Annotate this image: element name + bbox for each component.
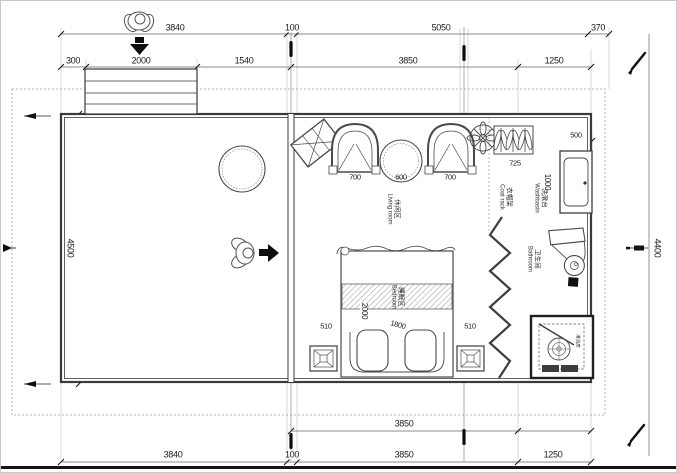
dim-left-4500: 4500 [66,239,75,258]
dim-top2-300: 300 [66,57,80,66]
dim-bottom-3840: 3840 [164,451,183,460]
mid-left-marker [3,244,16,252]
arch-chair-left [329,124,380,174]
floorplan-page: 3840 100 5050 370 300 2000 1540 3850 125… [0,0,677,473]
porch-steps [85,69,197,114]
left-dim-arrows [24,113,51,387]
dim-bottom-3850-inner: 3850 [395,420,414,429]
dim-bottom-100: 100 [284,451,300,460]
right-dim-marker [626,246,648,251]
entry-person-top-icon [122,12,156,34]
dim-bed-2000: 2000 [360,303,368,320]
label-shower: 淋浴房 [575,334,580,348]
dim-bed-510-right: 510 [464,322,476,330]
dim-bed-510-left: 510 [320,322,332,330]
entry-arrow-down-icon [130,37,149,55]
round-table-left-room [219,146,265,192]
arch-chair-right [425,124,476,174]
label-coat-rack: 衣帽架Coat rack [498,184,513,210]
shower-enclosure [531,316,593,378]
pillow-right [405,330,436,371]
pen-mark-bottom-right-icon [627,425,644,447]
dim-top-100: 100 [284,24,300,33]
dim-top2-3850: 3850 [399,57,418,66]
dim-top2-1540: 1540 [235,57,254,66]
label-living-room: 休闲区Living room [386,193,401,224]
label-bathroom: 卫生间Bathroom [526,246,541,272]
dim-table-600: 600 [395,173,407,181]
dim-top-3840: 3840 [166,24,185,33]
page-edge-bar [1,466,677,469]
nightstand-left [310,346,337,371]
dim-bottom-3850: 3850 [395,451,414,460]
washbasin [560,151,592,213]
dim-bottom-1250: 1250 [544,451,563,460]
dim-top2-2000: 2000 [132,57,151,66]
coat-rack [493,126,534,154]
dim-washbasin-500: 500 [570,131,582,139]
label-bedroom: 睡眠区Bedroom [390,285,405,309]
dim-right-4400: 4400 [653,239,662,258]
dim-coat-rack-725: 725 [508,159,522,167]
dim-top2-1250: 1250 [544,57,565,66]
pillow-left [357,330,388,371]
dim-top-370: 370 [591,24,605,33]
label-washbasin: 洗漱台Washbasin [533,183,548,212]
floorplan-drawing [1,1,677,473]
nightstand-right [457,346,484,371]
dim-chair-700-right: 700 [444,173,456,181]
bed [337,246,455,377]
dim-top-5050: 5050 [432,24,451,33]
pen-mark-top-right-icon [628,53,645,75]
dim-chair-700-left: 700 [349,173,361,181]
